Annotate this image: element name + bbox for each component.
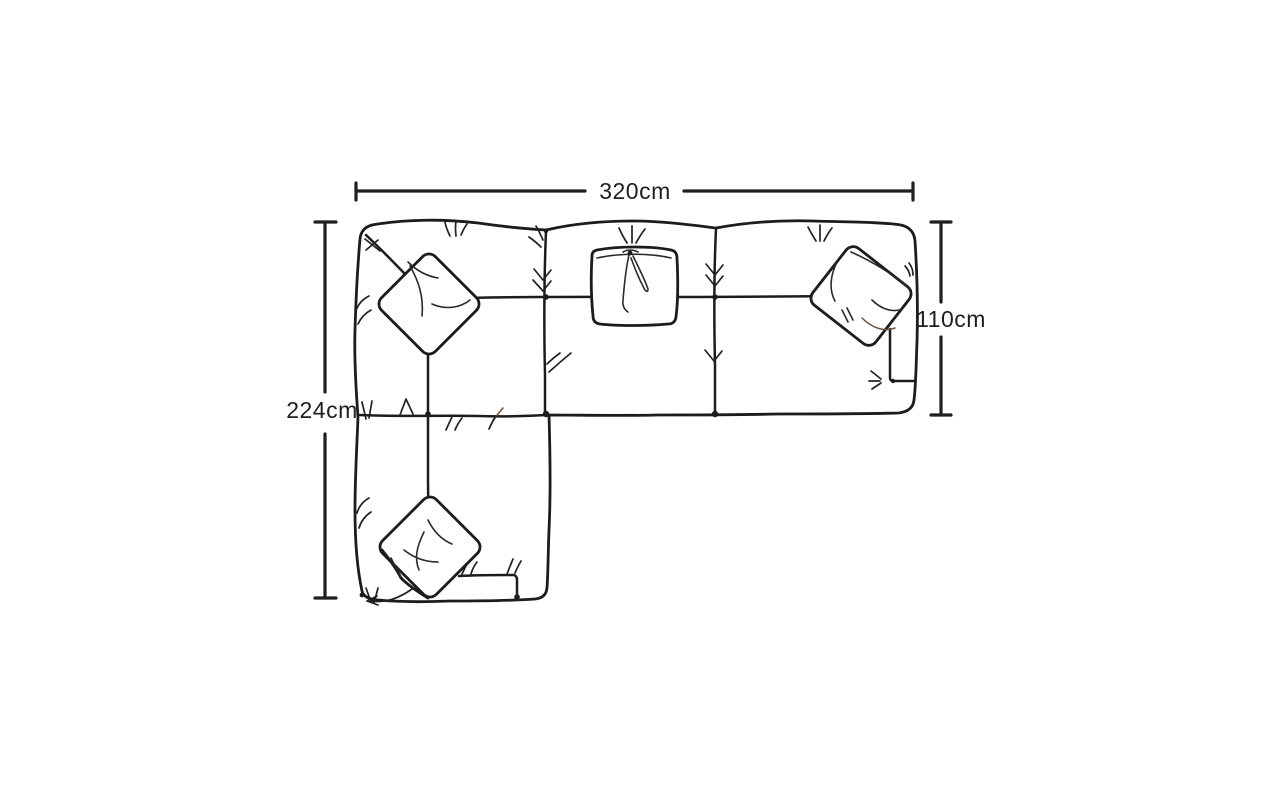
seat-seam-left bbox=[544, 231, 546, 414]
cushion-chaise bbox=[376, 493, 483, 600]
dimension-width-label: 320cm bbox=[599, 178, 671, 204]
dimension-depth-label: 110cm bbox=[916, 306, 986, 332]
seat-seam-right bbox=[714, 229, 716, 414]
cushion-right bbox=[807, 243, 914, 349]
sofa-drawing bbox=[355, 220, 918, 605]
right-arm-seam bbox=[890, 329, 914, 381]
dimension-length-label: 224cm bbox=[286, 397, 358, 423]
dimension-depth: 110cm bbox=[916, 222, 986, 415]
sofa-dimension-diagram: 320cm 110cm 224cm bbox=[0, 0, 1280, 800]
page-background: 320cm 110cm 224cm bbox=[0, 0, 1280, 800]
chaise-panel-seam bbox=[459, 575, 517, 597]
cushion-corner bbox=[375, 250, 482, 357]
dimension-length: 224cm bbox=[286, 222, 358, 598]
dimension-width: 320cm bbox=[356, 178, 913, 204]
chaise-top-seam bbox=[360, 415, 546, 416]
cushion-middle bbox=[591, 247, 677, 326]
